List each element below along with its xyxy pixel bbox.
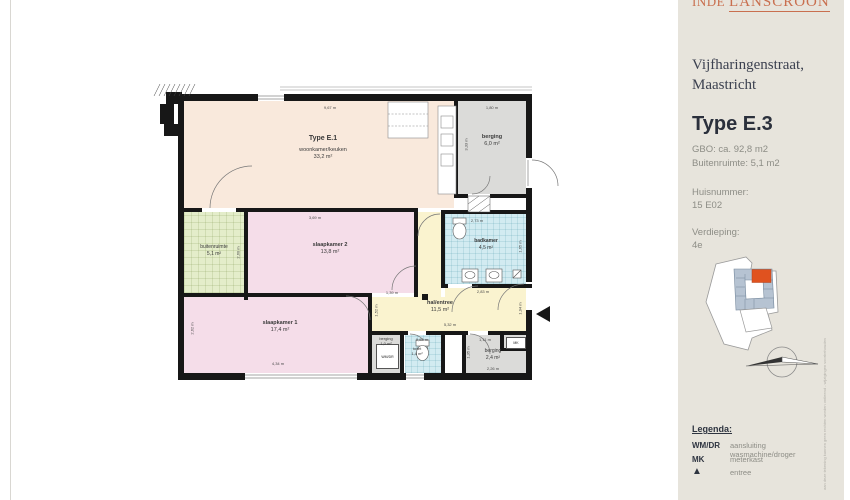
entree-triangle-icon: ▲: [692, 468, 730, 476]
hatch-ticks-icon: [154, 84, 195, 96]
floorplan: WM/DR MK Type E.1 woonkamer/keuken 33,2 …: [150, 82, 562, 394]
lower-building-outline: [740, 308, 772, 332]
entree-arrow-icon: [536, 306, 550, 322]
huisnummer-label: Huisnummer:: [692, 186, 749, 200]
legend-symbol-wmdr: WM/DR: [692, 441, 730, 450]
label-woonkamer: Type E.1 woonkamer/keuken 33,2 m²: [263, 134, 383, 161]
spec-buitenruimte: Buitenruimte: 5,1 m2: [692, 157, 780, 171]
dim-label: 1,65 m: [518, 227, 523, 267]
legend-symbol-mk: MK: [692, 455, 730, 464]
legend-title: Legenda:: [692, 424, 732, 434]
label-toilet: toilet 1,4 m²: [405, 346, 429, 356]
project-logo: INDE LANSCROON: [692, 0, 830, 11]
logo-part1: INDE: [692, 0, 725, 9]
dim-label: 2,60 m: [236, 233, 241, 273]
highlighted-unit: [752, 270, 771, 283]
site-locator-map: [696, 254, 808, 354]
huisnummer-value: 15 E02: [692, 199, 722, 213]
dim-label: 3,69 m: [280, 215, 350, 220]
label-berging-klein: berging 1,0 m²: [372, 336, 400, 346]
dim-label: 2,62 m: [190, 309, 195, 349]
dim-label: 5,32 m: [422, 322, 478, 327]
legend-row-mk: MKmeterkast: [692, 455, 837, 464]
verdieping-value: 4e: [692, 239, 703, 253]
dim-label: 1,11 m: [468, 337, 502, 342]
spec-gbo: GBO: ca. 92,8 m2: [692, 143, 768, 157]
legend-label-entree: entree: [730, 468, 830, 477]
meterkast-label: MK: [513, 341, 518, 345]
label-slaapkamer2: slaapkamer 2 13,8 m²: [280, 242, 380, 256]
washer-box: WM/DR: [376, 344, 399, 369]
dim-label: 4,34 m: [240, 361, 316, 366]
verdieping-label: Verdieping:: [692, 226, 740, 240]
dim-label: 3,33 m: [464, 125, 469, 165]
vertical-disclaimer: aan deze tekening kunnen geen rechten wo…: [822, 300, 827, 490]
dim-label: 0,83 m: [404, 337, 440, 342]
label-berging-2: berging 2,4 m²: [470, 348, 516, 361]
dim-label: 1,80 m: [462, 105, 522, 110]
unit-type-title: Type E.3: [692, 113, 773, 136]
legend-label-mk: meterkast: [730, 455, 830, 464]
dim-label: 2,83 m: [456, 289, 510, 294]
unit-type-label: Type E.1: [263, 134, 383, 143]
dim-label: 2,73 m: [450, 218, 504, 223]
dim-label: 1,52 m: [374, 291, 379, 331]
washer-label: WM/DR: [381, 355, 393, 359]
label-berging-groot: berging 6,0 m²: [462, 134, 522, 148]
sidebar: INDE LANSCROON Vijfharingenstraat, Maast…: [678, 0, 844, 500]
logo-part2: LANSCROON: [729, 0, 830, 12]
label-badkamer: badkamer 4,5 m²: [456, 238, 516, 251]
project-address: Vijfharingenstraat, Maastricht: [692, 55, 804, 96]
dim-label: 1,94 m: [518, 289, 523, 329]
label-slaapkamer1: slaapkamer 1 17,4 m²: [230, 320, 330, 334]
page-left-border: [10, 0, 11, 500]
balcony-railing-icon: [280, 87, 532, 90]
kitchen-counter-icon: [388, 102, 456, 194]
label-buitenruimte: buitenruimte 5,1 m²: [186, 244, 242, 257]
label-hal: hal/entree 11,5 m²: [405, 300, 475, 314]
compass-icon: [740, 340, 824, 384]
shaft-hatch-icon: [468, 196, 490, 212]
dim-label: 2,26 m: [470, 366, 516, 371]
legend-row-entree: ▲entree: [692, 468, 837, 477]
dim-label: 9,67 m: [290, 105, 370, 110]
